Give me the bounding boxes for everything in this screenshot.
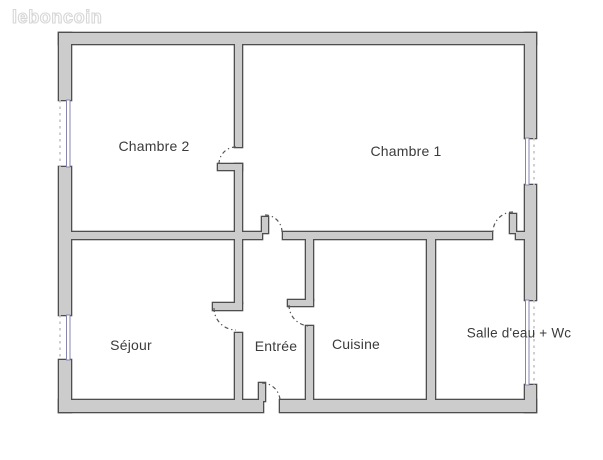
wall-segment: [235, 238, 242, 303]
wall-segment: [427, 238, 435, 402]
wall-segment: [510, 214, 516, 233]
wall-segment: [70, 232, 262, 239]
wall-segment: [283, 232, 492, 239]
wall-segment: [288, 300, 313, 306]
leboncoin-watermark: leboncoin: [12, 7, 102, 28]
room-label-salle-deau-wc: Salle d'eau + Wc: [467, 326, 571, 341]
wall-segment: [213, 303, 242, 310]
wall-segment: [525, 33, 536, 138]
wall-segment: [306, 326, 313, 402]
wall-segment: [525, 185, 536, 300]
wall-segment: [280, 400, 536, 412]
wall-segment: [306, 238, 313, 300]
wall-segment: [59, 167, 71, 315]
window: [67, 100, 71, 167]
window: [526, 138, 530, 185]
wall-segment: [218, 164, 242, 170]
room-label-entree: Entrée: [255, 338, 297, 354]
wall-segment: [516, 232, 526, 239]
room-label-cuisine: Cuisine: [332, 336, 380, 352]
wall-segment: [259, 383, 265, 401]
wall-segment: [235, 164, 242, 239]
window: [526, 300, 530, 385]
wall-segment: [262, 217, 268, 233]
floorplan-image: leboncoin Chambre 2 Chambre 1 Séjour Ent…: [0, 0, 603, 460]
door-arc: [219, 147, 236, 164]
door-arc: [289, 305, 310, 326]
wall-segment: [59, 400, 263, 412]
wall-segment: [59, 33, 71, 100]
wall-segment: [59, 33, 536, 44]
room-label-chambre-2: Chambre 2: [118, 138, 189, 154]
floorplan-drawing: [0, 0, 603, 460]
wall-segment: [235, 43, 242, 147]
window: [67, 315, 71, 360]
room-label-chambre-1: Chambre 1: [370, 143, 441, 159]
wall-segment: [235, 333, 242, 402]
room-label-sejour: Séjour: [110, 337, 152, 353]
